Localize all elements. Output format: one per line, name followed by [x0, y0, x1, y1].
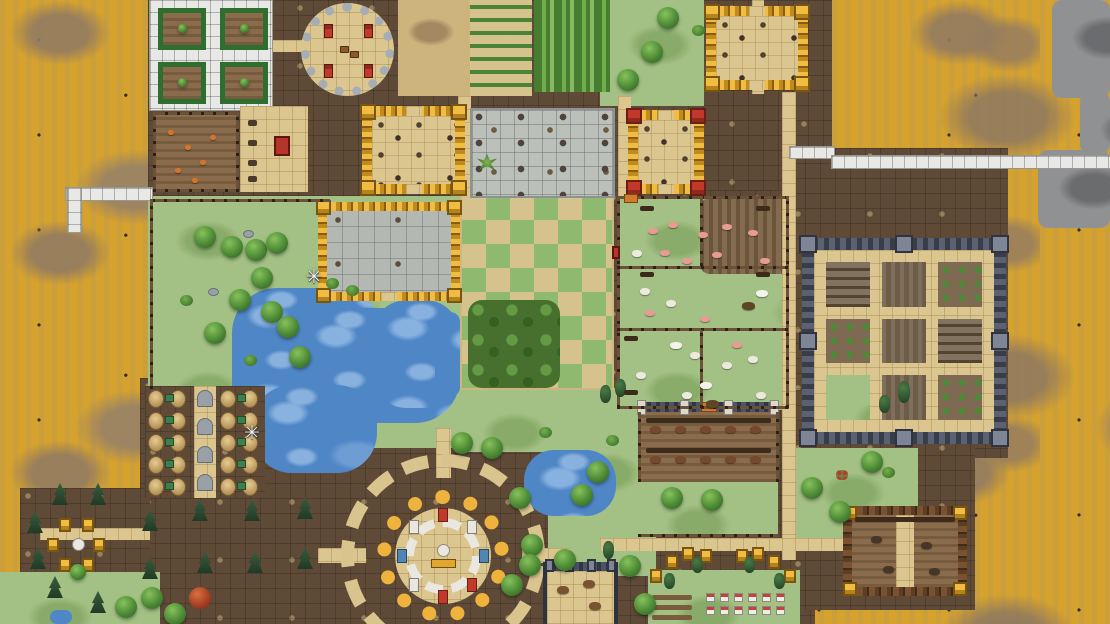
fence: [153, 189, 239, 192]
animal-pig[interactable]: [748, 230, 758, 236]
beehive[interactable]: [776, 606, 785, 615]
tree-o[interactable]: [251, 267, 273, 289]
cypress-tree[interactable]: [774, 573, 785, 589]
tree-a[interactable]: [189, 587, 211, 609]
grand-plaza-circle[interactable]: [333, 446, 553, 624]
tree-b[interactable]: [606, 435, 619, 446]
red-tower: [690, 180, 706, 196]
orchard: [468, 300, 560, 388]
green-crate[interactable]: [165, 482, 174, 490]
crop-field: [470, 0, 532, 96]
pen-wall: [614, 562, 618, 624]
tree-b[interactable]: [882, 467, 895, 478]
animal-horse[interactable]: [675, 426, 686, 433]
animal-pig[interactable]: [645, 310, 655, 316]
green-crate[interactable]: [237, 394, 246, 402]
bear-pen[interactable]: [543, 562, 618, 624]
fence: [776, 412, 779, 482]
tree-o[interactable]: [266, 232, 288, 254]
gold-pillar: [47, 538, 59, 552]
plaza-sign[interactable]: [431, 559, 456, 568]
stored-item: [248, 140, 257, 146]
plaza-statue[interactable]: [437, 544, 450, 557]
tree-o[interactable]: [801, 477, 823, 499]
cypress-tree[interactable]: [664, 573, 675, 589]
gold-pillar: [784, 569, 796, 583]
hall-floor: [638, 120, 694, 184]
door[interactable]: [381, 292, 397, 301]
animal-bear[interactable]: [589, 602, 601, 610]
hay-post[interactable]: [220, 412, 236, 430]
beehive[interactable]: [748, 606, 757, 615]
stone-arch: [197, 446, 213, 463]
gold-pillar: [59, 518, 71, 532]
aisle: [896, 515, 914, 587]
green-crate[interactable]: [165, 416, 174, 424]
animal-pig[interactable]: [722, 224, 732, 230]
log-wall: [958, 520, 967, 582]
fence: [617, 196, 789, 199]
green-crate[interactable]: [165, 394, 174, 402]
red-obelisk[interactable]: [324, 64, 333, 78]
gold-tower: [316, 200, 331, 215]
feed-trough: [646, 448, 771, 453]
animal-horse[interactable]: [750, 456, 761, 463]
plaza-pillar[interactable]: [397, 549, 407, 563]
tree-o[interactable]: [829, 501, 851, 523]
gold-tower: [451, 104, 467, 120]
log-wall: [855, 506, 955, 515]
animal-bison[interactable]: [706, 400, 719, 408]
animal-bison[interactable]: [742, 302, 755, 310]
beehive[interactable]: [720, 593, 729, 602]
stone-arch: [197, 390, 213, 407]
animal-boar[interactable]: [929, 568, 940, 575]
hedge-garden[interactable]: [150, 0, 272, 110]
animal-chicken[interactable]: [185, 145, 191, 150]
garden-row: [652, 615, 692, 620]
green-crate[interactable]: [165, 438, 174, 446]
animal-chicken[interactable]: [192, 178, 198, 183]
door[interactable]: [658, 110, 674, 120]
tree-o[interactable]: [634, 593, 656, 615]
hay-post[interactable]: [148, 456, 164, 474]
beehive-garden[interactable]: [648, 545, 800, 624]
animal-boar[interactable]: [883, 566, 894, 573]
animal-chicken[interactable]: [210, 135, 216, 140]
stone-arch: [197, 418, 213, 435]
plaza-pillar[interactable]: [467, 520, 477, 534]
game-map-canvas[interactable]: ✳✳: [0, 0, 1110, 624]
fence: [153, 112, 239, 115]
pond-water: [435, 312, 460, 397]
tree-b[interactable]: [692, 25, 705, 36]
tree-o[interactable]: [245, 239, 267, 261]
animal-cow[interactable]: [756, 290, 768, 297]
hay-post[interactable]: [220, 434, 236, 452]
animal-horse[interactable]: [650, 456, 661, 463]
garden-row: [652, 605, 692, 610]
tree-o[interactable]: [571, 484, 593, 506]
tree-b[interactable]: [539, 427, 552, 438]
wall-tower: [895, 429, 913, 447]
fence: [638, 412, 641, 482]
stored-item: [248, 176, 257, 182]
hay-post[interactable]: [148, 478, 164, 496]
tree-c[interactable]: [603, 541, 614, 559]
gold-tower: [843, 582, 857, 596]
rock-outcrop-c: [1080, 92, 1110, 154]
beehive[interactable]: [748, 593, 757, 602]
stored-item: [248, 160, 257, 166]
stockpile-yard[interactable]: [472, 110, 613, 196]
tree-b[interactable]: [180, 295, 193, 306]
tree-o[interactable]: [554, 549, 576, 571]
animal-chicken[interactable]: [168, 130, 174, 135]
cypress-tree[interactable]: [744, 557, 755, 573]
gold-tower: [360, 104, 376, 120]
log-wall: [855, 587, 955, 596]
animal-cow[interactable]: [700, 382, 712, 389]
feed-trough: [646, 418, 771, 423]
tree-o[interactable]: [501, 574, 523, 596]
feed-trough: [756, 206, 770, 211]
compound-plot[interactable]: [826, 375, 870, 420]
animal-sheep[interactable]: [690, 352, 700, 359]
hay-post[interactable]: [220, 390, 236, 408]
well-statue[interactable]: [72, 538, 85, 551]
plaza-pillar[interactable]: [409, 578, 419, 592]
cypress-tree[interactable]: [692, 557, 703, 573]
animal-pig[interactable]: [648, 228, 658, 234]
loom-machine[interactable]: [274, 136, 290, 156]
gold-tower: [794, 4, 810, 20]
fence: [617, 328, 789, 331]
small-tree[interactable]: [70, 564, 86, 580]
animal-horse[interactable]: [700, 426, 711, 433]
tree-o[interactable]: [521, 534, 543, 556]
animal-horse[interactable]: [725, 426, 736, 433]
animal-pig[interactable]: [668, 222, 678, 228]
boulder: [208, 288, 219, 296]
gold-wall: [318, 202, 460, 211]
door[interactable]: [406, 184, 422, 194]
feed-trough: [624, 336, 638, 341]
animal-sheep[interactable]: [756, 392, 766, 399]
red-obelisk[interactable]: [364, 24, 373, 38]
dig-patch: [398, 0, 470, 96]
compound-plot[interactable]: [826, 319, 870, 364]
animal-bear[interactable]: [583, 580, 595, 588]
gold-tower: [360, 180, 376, 196]
gold-tower: [704, 4, 720, 20]
door[interactable]: [658, 184, 674, 194]
chest[interactable]: [350, 51, 359, 58]
pond-water: [50, 610, 72, 624]
sapling-icon: [240, 78, 249, 87]
animal-pig[interactable]: [660, 250, 670, 256]
tree-o[interactable]: [141, 587, 163, 609]
wall-tower: [799, 429, 817, 447]
gold-pillar: [93, 538, 105, 552]
fence: [152, 199, 330, 202]
plaza-pillar[interactable]: [467, 578, 477, 592]
fence: [236, 112, 239, 192]
animal-boar[interactable]: [921, 542, 932, 549]
gold-pillar: [82, 518, 94, 532]
pen-floor: [547, 571, 614, 624]
workshop-hall[interactable]: [628, 110, 704, 194]
red-tower: [626, 108, 642, 124]
stone-arch: [197, 474, 213, 491]
sapling-icon: [178, 24, 187, 33]
tree-o[interactable]: [701, 489, 723, 511]
gold-pillar: [768, 555, 780, 569]
animal-sheep[interactable]: [640, 288, 650, 295]
animal-boar[interactable]: [871, 536, 882, 543]
door[interactable]: [406, 106, 422, 116]
animal-pig[interactable]: [698, 232, 708, 238]
hay-post[interactable]: [220, 456, 236, 474]
animal-horse[interactable]: [650, 426, 661, 433]
log-wall: [843, 520, 852, 582]
walled-compound[interactable]: [802, 238, 1006, 444]
wall-tower: [799, 235, 817, 253]
sand-path: [782, 92, 796, 560]
tree-o[interactable]: [661, 487, 683, 509]
gold-pillar: [650, 569, 662, 583]
sapling-icon: [178, 78, 187, 87]
green-crate[interactable]: [237, 460, 246, 468]
gold-tower: [316, 288, 331, 303]
beehive[interactable]: [706, 606, 715, 615]
pasture-gate[interactable]: [624, 194, 638, 203]
tree-o[interactable]: [229, 289, 251, 311]
sapling-icon: [240, 24, 249, 33]
gold-wall: [451, 202, 460, 301]
animal-cow[interactable]: [670, 342, 682, 349]
red-obelisk[interactable]: [364, 64, 373, 78]
beehive[interactable]: [734, 593, 743, 602]
hay-post[interactable]: [148, 412, 164, 430]
stone-road: [832, 156, 1110, 168]
animal-horse[interactable]: [675, 456, 686, 463]
stone-courtyard[interactable]: [318, 202, 460, 301]
red-banner[interactable]: [612, 246, 620, 259]
pen-wall: [543, 562, 547, 624]
well-pavilion[interactable]: [46, 516, 110, 580]
gold-tower: [953, 506, 967, 520]
wall-tower: [799, 332, 817, 350]
tree-c[interactable]: [600, 385, 611, 403]
animal-horse[interactable]: [700, 456, 711, 463]
feed-trough: [640, 206, 654, 211]
fence: [786, 196, 789, 408]
tree-o[interactable]: [641, 41, 663, 63]
tree-o[interactable]: [451, 432, 473, 454]
tree-o[interactable]: [587, 461, 609, 483]
animal-horse[interactable]: [750, 426, 761, 433]
tree-o[interactable]: [194, 226, 216, 248]
tree-b[interactable]: [346, 285, 359, 296]
statue-pillar: [587, 559, 596, 572]
tree-o[interactable]: [617, 69, 639, 91]
beehive[interactable]: [720, 606, 729, 615]
animal-horse[interactable]: [725, 456, 736, 463]
door[interactable]: [749, 80, 765, 90]
hall-floor: [716, 16, 798, 80]
beehive[interactable]: [776, 593, 785, 602]
gold-tower: [953, 582, 967, 596]
animal-sheep[interactable]: [748, 356, 758, 363]
wall-tower: [991, 429, 1009, 447]
green-crate[interactable]: [237, 482, 246, 490]
animal-pig[interactable]: [700, 316, 710, 322]
gold-tower: [794, 76, 810, 92]
plaza-pillar[interactable]: [409, 520, 419, 534]
tree-o[interactable]: [204, 322, 226, 344]
fence: [700, 196, 703, 266]
animal-pig[interactable]: [682, 258, 692, 264]
tree-o[interactable]: [519, 554, 541, 576]
barracks-hall[interactable]: [362, 106, 465, 194]
chest[interactable]: [340, 46, 349, 53]
tree-o[interactable]: [115, 596, 137, 618]
fence: [700, 330, 703, 408]
gold-tower: [447, 288, 462, 303]
stone-road: [790, 147, 834, 158]
green-crate[interactable]: [165, 460, 174, 468]
fence: [150, 199, 153, 389]
tree-o[interactable]: [221, 236, 243, 258]
tree-o[interactable]: [289, 346, 311, 368]
tree-o[interactable]: [657, 7, 679, 29]
beehive[interactable]: [734, 606, 743, 615]
windmill-icon[interactable]: ✳: [244, 424, 264, 444]
stored-item: [248, 120, 257, 126]
tree-c[interactable]: [879, 395, 890, 413]
beehive[interactable]: [762, 606, 771, 615]
tree-o[interactable]: [861, 451, 883, 473]
dining-hall[interactable]: [706, 6, 808, 90]
animal-pig[interactable]: [760, 258, 770, 264]
plaza-pillar[interactable]: [438, 590, 448, 604]
fence: [638, 534, 778, 537]
gold-pillar: [59, 558, 71, 572]
tree-b[interactable]: [326, 278, 339, 289]
compound-plot[interactable]: [938, 319, 982, 364]
animal-sheep[interactable]: [632, 250, 642, 257]
boulder: [243, 230, 254, 238]
wall-tower: [895, 235, 913, 253]
fence: [617, 266, 789, 269]
fence: [153, 112, 156, 192]
feed-trough: [855, 517, 955, 522]
beehive[interactable]: [706, 593, 715, 602]
compound-plot[interactable]: [938, 375, 982, 420]
horse-stable[interactable]: [638, 402, 779, 482]
mud-patch: [700, 198, 790, 274]
feed-trough: [756, 272, 770, 277]
wall-tower: [991, 235, 1009, 253]
sand-path: [270, 40, 302, 52]
courtyard-floor: [326, 210, 452, 293]
wall-tower: [991, 332, 1009, 350]
corn-field: [534, 0, 610, 92]
tree-b[interactable]: [244, 355, 257, 366]
animal-chicken[interactable]: [200, 160, 206, 165]
compound-plot[interactable]: [882, 262, 926, 307]
cypress-tree[interactable]: [898, 381, 910, 403]
door[interactable]: [749, 6, 765, 16]
tree-o[interactable]: [509, 487, 531, 509]
hay-post[interactable]: [148, 390, 164, 408]
red-obelisk[interactable]: [324, 24, 333, 38]
garden-row: [652, 595, 692, 600]
windmill-icon[interactable]: ✳: [306, 268, 326, 288]
gold-tower: [451, 180, 467, 196]
animal-chicken[interactable]: [175, 168, 181, 173]
compound-plot[interactable]: [882, 319, 926, 364]
tree-o[interactable]: [481, 437, 503, 459]
gold-tower: [447, 200, 462, 215]
compound-plot[interactable]: [938, 262, 982, 307]
animal-sheep[interactable]: [666, 300, 676, 307]
hall-floor: [372, 116, 455, 184]
gold-pillar: [666, 555, 678, 569]
feed-trough: [624, 390, 638, 395]
rock-outcrop-a: [1052, 0, 1110, 98]
fence: [617, 406, 789, 409]
hay-post[interactable]: [220, 478, 236, 496]
animal-pig[interactable]: [712, 252, 722, 258]
hay-post[interactable]: [148, 434, 164, 452]
plaza-pillar[interactable]: [438, 508, 448, 522]
fence: [617, 196, 620, 408]
stone-road: [68, 188, 81, 232]
animal-sheep[interactable]: [682, 392, 692, 399]
tree-o[interactable]: [277, 316, 299, 338]
tree-o[interactable]: [164, 603, 186, 624]
animal-bear[interactable]: [557, 586, 569, 594]
plaza-pillar[interactable]: [479, 549, 489, 563]
animal-sheep[interactable]: [722, 362, 732, 369]
weaving-room[interactable]: [240, 106, 308, 192]
red-flower-bush[interactable]: [836, 470, 848, 480]
tree-o[interactable]: [619, 555, 641, 577]
gold-tower: [704, 76, 720, 92]
animal-sheep[interactable]: [636, 372, 646, 379]
compound-plot[interactable]: [826, 262, 870, 307]
animal-pig[interactable]: [732, 342, 742, 348]
red-tower: [690, 108, 706, 124]
shrine-circle[interactable]: [301, 3, 394, 96]
beehive[interactable]: [762, 593, 771, 602]
pig-barn[interactable]: [843, 506, 967, 596]
feed-trough: [640, 272, 654, 277]
